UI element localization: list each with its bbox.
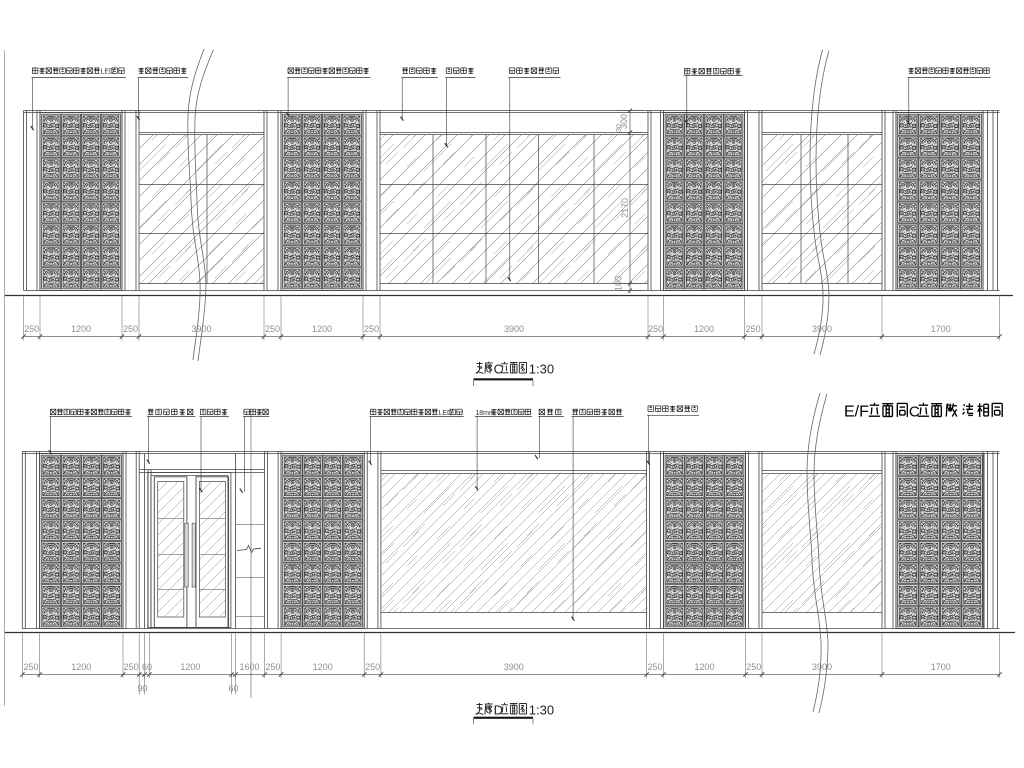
svg-text:250: 250 (124, 662, 139, 672)
svg-text:1200: 1200 (313, 662, 333, 672)
svg-text:1200: 1200 (71, 662, 91, 672)
svg-text:100: 100 (614, 276, 624, 291)
svg-text:1200: 1200 (180, 662, 200, 672)
svg-text:E/F: E/F (844, 404, 869, 421)
svg-text:60: 60 (228, 684, 238, 694)
svg-text:1700: 1700 (931, 324, 951, 334)
svg-text:60: 60 (142, 662, 152, 672)
svg-text:3900: 3900 (504, 662, 524, 672)
svg-text:1200: 1200 (694, 324, 714, 334)
svg-text:3900: 3900 (812, 324, 832, 334)
svg-text:250: 250 (265, 324, 280, 334)
svg-text:3900: 3900 (504, 324, 524, 334)
svg-text:C: C (909, 404, 920, 421)
svg-text:1:30: 1:30 (529, 703, 554, 718)
svg-text:250: 250 (265, 662, 280, 672)
svg-text:250: 250 (24, 324, 39, 334)
svg-text:2170: 2170 (620, 198, 630, 218)
svg-text:1200: 1200 (312, 324, 332, 334)
svg-text:1700: 1700 (931, 662, 951, 672)
svg-text:18mm: 18mm (475, 410, 495, 417)
svg-text:250: 250 (365, 662, 380, 672)
svg-text:250: 250 (648, 324, 663, 334)
svg-text:250: 250 (647, 662, 662, 672)
svg-text:1200: 1200 (71, 324, 91, 334)
svg-text:250: 250 (746, 662, 761, 672)
svg-text:250: 250 (23, 662, 38, 672)
svg-text:30: 30 (614, 124, 623, 132)
svg-text:1200: 1200 (694, 662, 714, 672)
svg-text:3900: 3900 (812, 662, 832, 672)
svg-text:250: 250 (364, 324, 379, 334)
svg-text:250: 250 (746, 324, 761, 334)
svg-text:90: 90 (137, 684, 147, 694)
svg-text:250: 250 (123, 324, 138, 334)
svg-text:1:30: 1:30 (529, 362, 554, 377)
svg-text:1600: 1600 (239, 662, 259, 672)
